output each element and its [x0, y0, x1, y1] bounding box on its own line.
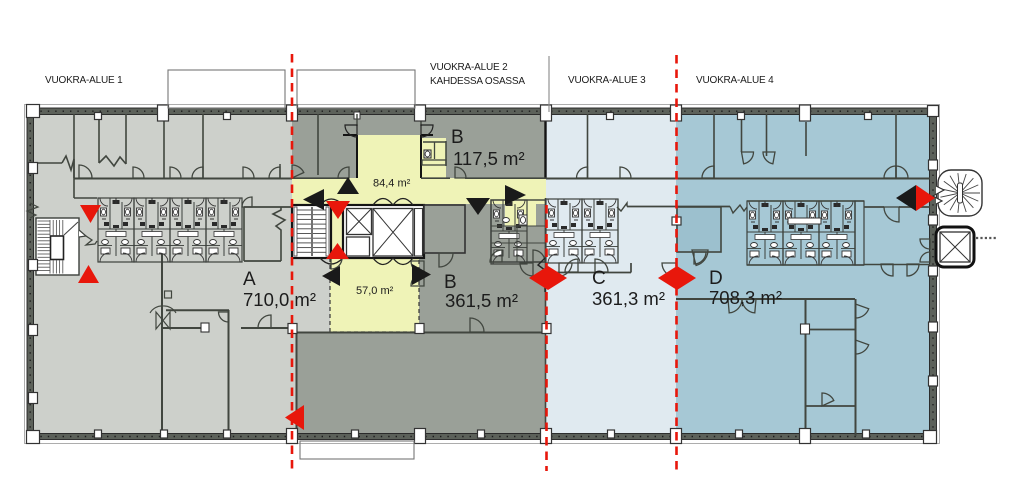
svg-text:57,0 m²: 57,0 m²	[356, 285, 394, 297]
svg-text:VUOKRA-ALUE 2: VUOKRA-ALUE 2	[430, 62, 508, 73]
svg-text:VUOKRA-ALUE 1: VUOKRA-ALUE 1	[45, 75, 123, 86]
svg-text:D: D	[709, 268, 723, 289]
svg-text:710,0 m²: 710,0 m²	[243, 289, 316, 310]
svg-text:361,5 m²: 361,5 m²	[445, 290, 518, 311]
svg-text:84,4 m²: 84,4 m²	[373, 178, 411, 190]
svg-text:B: B	[451, 127, 464, 148]
svg-text:VUOKRA-ALUE 3: VUOKRA-ALUE 3	[568, 75, 646, 86]
svg-text:VUOKRA-ALUE 4: VUOKRA-ALUE 4	[696, 75, 774, 86]
svg-text:C: C	[592, 268, 606, 289]
svg-text:KAHDESSA OSASSA: KAHDESSA OSASSA	[430, 76, 525, 87]
svg-text:A: A	[243, 269, 256, 290]
svg-text:361,3 m²: 361,3 m²	[592, 288, 665, 309]
svg-text:708,3 m²: 708,3 m²	[709, 287, 782, 308]
svg-text:117,5 m²: 117,5 m²	[453, 148, 525, 169]
